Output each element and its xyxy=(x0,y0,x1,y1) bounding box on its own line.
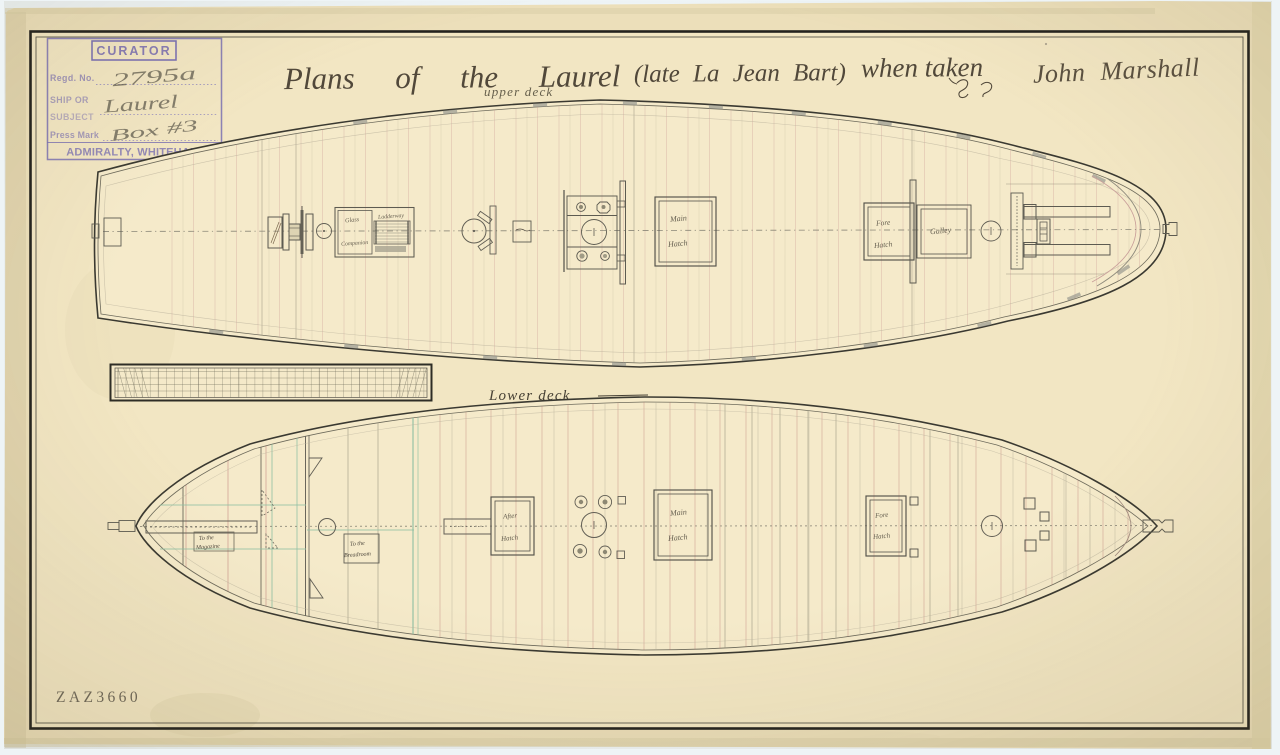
svg-text:ZAZ3660: ZAZ3660 xyxy=(56,689,141,706)
